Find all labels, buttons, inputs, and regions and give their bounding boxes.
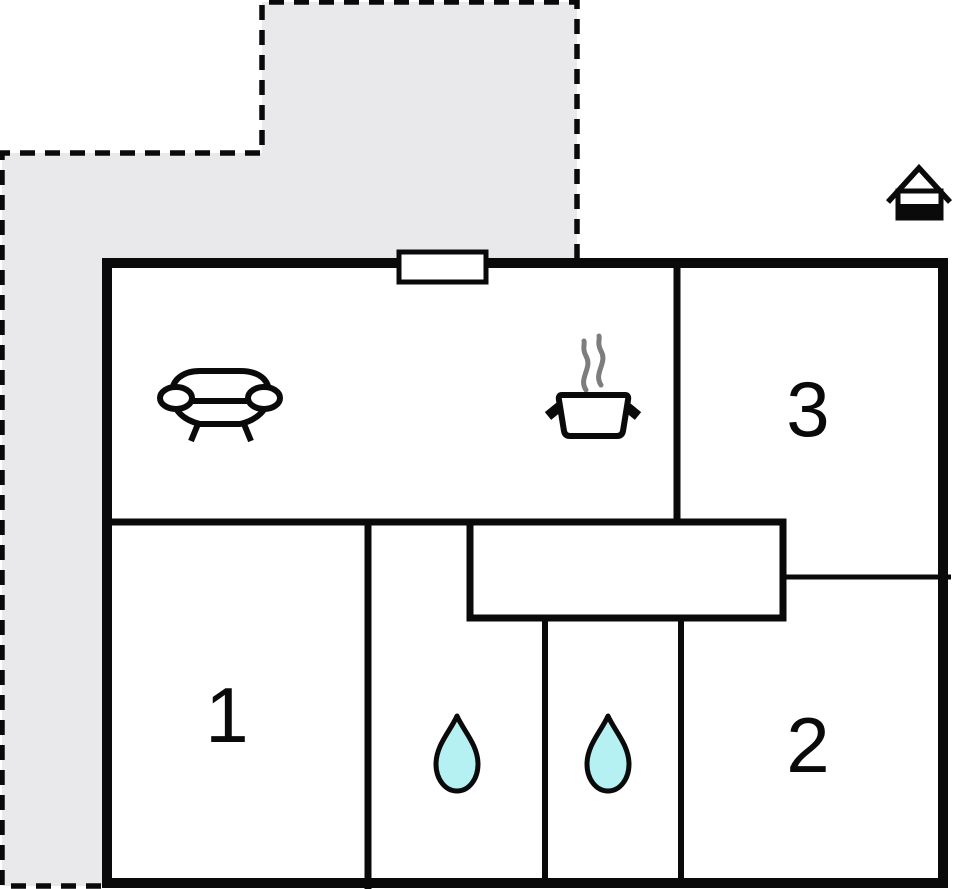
sofa-armrest-right (248, 387, 280, 409)
floorplan-canvas: 1 2 3 (0, 0, 960, 889)
house-body-base (896, 204, 944, 221)
room-label-3: 3 (786, 365, 829, 453)
room-label-1: 1 (205, 671, 248, 759)
pot-body (559, 395, 628, 436)
room-label-2: 2 (786, 701, 829, 789)
hallway (470, 522, 783, 618)
floor-plan-svg: 1 2 3 (0, 0, 960, 889)
sofa-armrest-left (160, 387, 192, 409)
entrance-door (399, 252, 486, 282)
house-icon (888, 168, 950, 221)
